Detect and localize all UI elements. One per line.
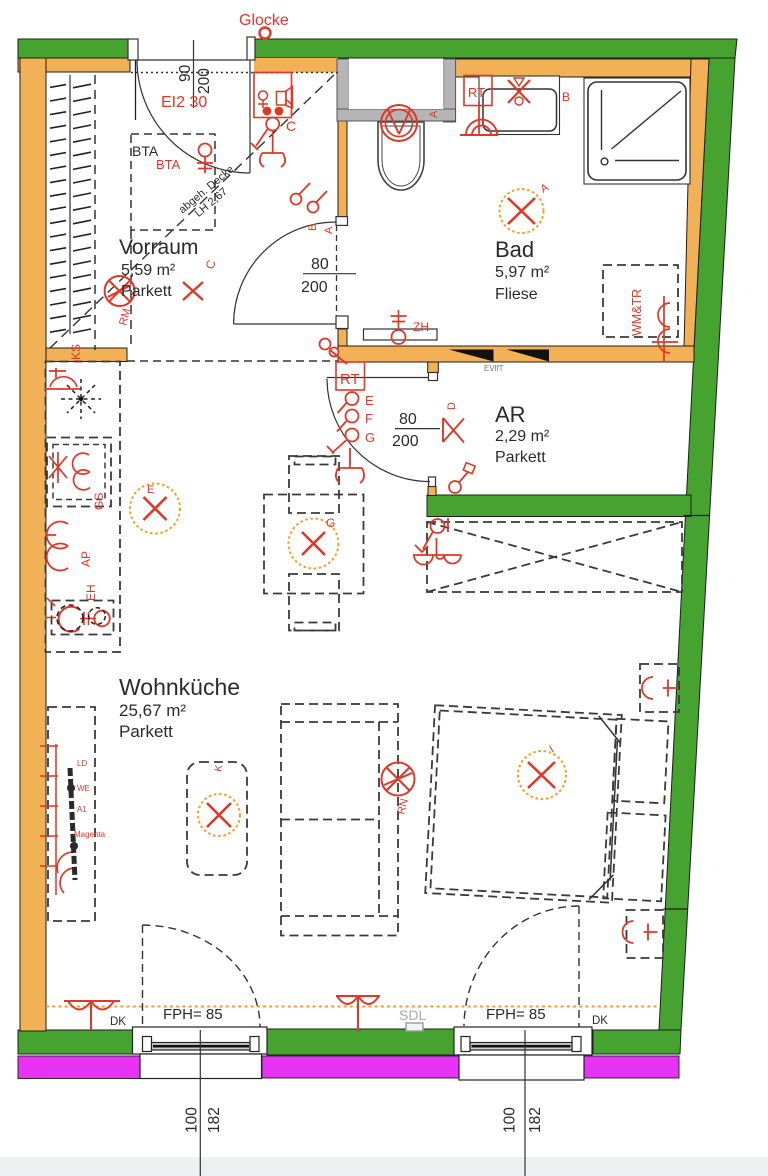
svg-text:100: 100 (184, 1107, 201, 1133)
svg-text:E: E (147, 484, 154, 496)
svg-text:DK: DK (110, 1016, 126, 1028)
svg-text:A: A (323, 226, 335, 234)
svg-text:SDL: SDL (399, 1007, 426, 1023)
svg-text:Parkett: Parkett (495, 449, 546, 466)
svg-text:200: 200 (301, 279, 328, 296)
svg-text:90: 90 (177, 64, 194, 82)
svg-text:DK: DK (592, 1015, 608, 1027)
svg-text:182: 182 (206, 1107, 223, 1133)
svg-text:RT: RT (468, 85, 485, 100)
svg-text:Glocke: Glocke (239, 12, 289, 29)
svg-text:AR: AR (495, 402, 526, 427)
svg-text:A: A (428, 110, 440, 118)
svg-text:BTA: BTA (156, 157, 181, 172)
svg-text:FPH= 85: FPH= 85 (486, 1006, 546, 1023)
svg-text:WM&TR: WM&TR (630, 289, 644, 336)
svg-text:E: E (365, 393, 374, 408)
svg-text:G: G (365, 430, 375, 445)
svg-text:182: 182 (527, 1107, 544, 1133)
svg-text:LD: LD (77, 759, 87, 768)
svg-text:200: 200 (392, 433, 419, 450)
svg-text:KS: KS (69, 344, 83, 360)
svg-text:BTA: BTA (132, 143, 159, 159)
svg-text:200: 200 (196, 68, 213, 94)
svg-text:Magenta: Magenta (74, 830, 106, 839)
svg-text:Parkett: Parkett (121, 283, 172, 300)
svg-text:Bad: Bad (495, 237, 534, 262)
svg-text:G: G (326, 516, 335, 530)
svg-text:2,29 m²: 2,29 m² (495, 428, 550, 445)
svg-text:EVlfT: EVlfT (484, 364, 504, 373)
svg-text:80: 80 (399, 411, 417, 428)
svg-text:EI2 30: EI2 30 (161, 94, 207, 111)
svg-text:Fliese: Fliese (495, 286, 538, 303)
svg-text:D: D (446, 402, 458, 410)
svg-text:5,59 m²: 5,59 m² (121, 262, 176, 279)
svg-text:ZH: ZH (413, 320, 429, 334)
svg-text:80: 80 (311, 256, 329, 273)
svg-text:AP: AP (79, 551, 93, 567)
svg-text:C: C (286, 118, 296, 134)
svg-text:B: B (307, 224, 319, 231)
svg-text:A1: A1 (77, 805, 87, 814)
svg-text:GS: GS (92, 493, 106, 510)
svg-text:RT: RT (340, 371, 360, 388)
svg-text:100: 100 (502, 1107, 519, 1133)
svg-text:Vorraum: Vorraum (119, 236, 198, 259)
svg-text:Parkett: Parkett (119, 722, 173, 741)
svg-text:B: B (562, 90, 570, 104)
svg-text:F: F (365, 411, 373, 426)
svg-text:EH: EH (84, 584, 98, 601)
svg-text:Wohnküche: Wohnküche (119, 674, 240, 700)
svg-text:FPH= 85: FPH= 85 (163, 1006, 223, 1023)
svg-text:25,67 m²: 25,67 m² (119, 701, 186, 720)
svg-text:5,97 m²: 5,97 m² (495, 264, 550, 281)
svg-text:WE: WE (77, 784, 90, 793)
